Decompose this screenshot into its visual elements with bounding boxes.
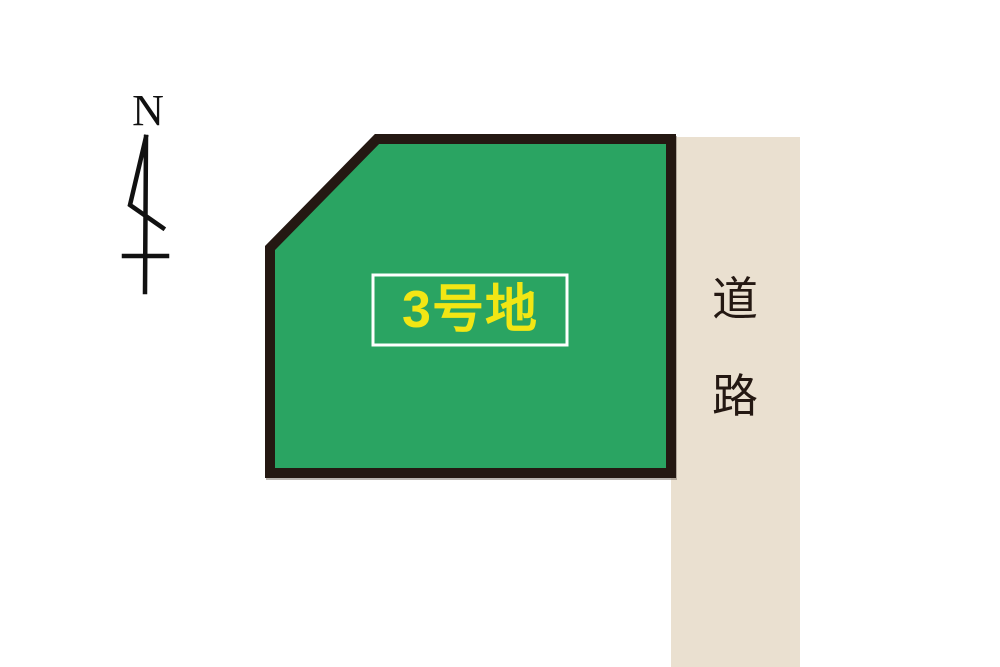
lot-3-label: 3号地 bbox=[373, 275, 567, 345]
road-label-char-2: 路 bbox=[712, 373, 758, 419]
north-arrow-icon bbox=[124, 137, 167, 292]
site-plan-canvas: N 3号地 道 路 bbox=[0, 0, 1000, 667]
road-label: 道 路 bbox=[705, 276, 765, 419]
road-label-char-1: 道 bbox=[712, 276, 758, 322]
compass-north-label: N bbox=[126, 88, 170, 134]
